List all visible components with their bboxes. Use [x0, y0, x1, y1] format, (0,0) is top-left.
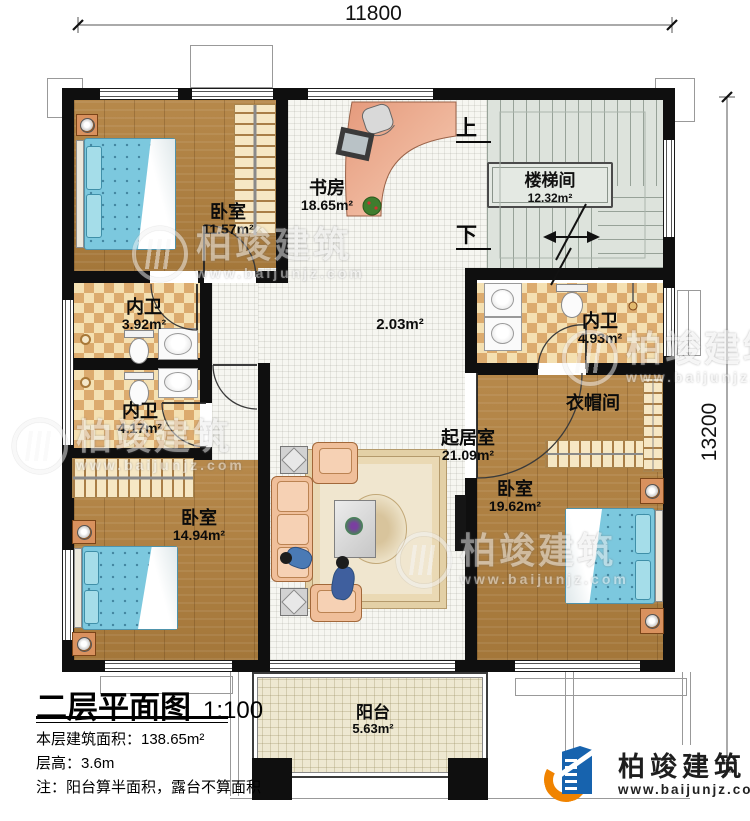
watermark-logo-icon — [396, 532, 452, 588]
room-area: 2.03m² — [376, 317, 424, 334]
room-label-study: 书房 18.65m² — [301, 178, 353, 214]
plant-icon — [363, 197, 381, 215]
note-floor-area: 本层建筑面积：138.65m² — [36, 728, 204, 749]
watermark-logo-icon — [132, 226, 188, 282]
room-label-cloakroom: 衣帽间 — [566, 393, 620, 413]
title-underline — [36, 722, 228, 723]
room-name: 衣帽间 — [566, 393, 620, 413]
brand-name: 柏竣建筑 — [618, 753, 750, 783]
room-name: 内卫 — [122, 297, 166, 317]
plan-title-row: 二层平面图 1:100 — [36, 682, 263, 727]
stair-direction-arrow — [587, 231, 600, 243]
door-swing-arc — [213, 365, 257, 409]
watermark-logo-icon — [12, 418, 68, 474]
watermark-logo-icon — [575, 343, 603, 373]
watermark-brand: 柏竣建筑 — [76, 419, 245, 455]
room-name: 卧室 — [173, 508, 225, 528]
watermark-brand: 柏竣建筑 — [626, 331, 750, 367]
room-label-hall: 2.03m² — [376, 317, 424, 334]
room-area: 21.09m² — [441, 448, 495, 464]
watermark-brand: 柏竣建筑 — [196, 227, 365, 263]
note-remark: 注：阳台算半面积，露台不算面积 — [36, 776, 261, 797]
room-name: 书房 — [301, 178, 353, 198]
floor-plan-sheet: 楼梯间 12.32m² 上 下 — [0, 0, 750, 821]
room-label-bedroom-br: 卧室 19.62m² — [489, 479, 541, 515]
plan-scale: 1:100 — [203, 697, 263, 725]
room-name: 卧室 — [202, 202, 253, 222]
plan-title: 二层平面图 — [36, 682, 191, 727]
room-label-bath-left-upper: 内卫 3.92m² — [122, 297, 166, 333]
watermark-brand: 柏竣建筑 — [460, 533, 629, 569]
stair-break-line — [551, 248, 571, 285]
brand-logo: 柏竣建筑 www.baijunjz.com — [542, 744, 750, 806]
plant-icon — [367, 201, 370, 204]
room-area: 19.62m² — [489, 499, 541, 515]
watermark: 柏竣建筑 www.baijunjz.com — [12, 418, 245, 474]
room-area: 18.65m² — [301, 198, 353, 214]
watermark-logo-icon — [145, 239, 173, 269]
watermark-logo-icon — [25, 431, 53, 461]
title-underline — [36, 716, 228, 719]
watermark: 柏竣建筑 www.baijunjz.com — [132, 226, 365, 282]
room-area: 14.94m² — [173, 528, 225, 544]
room-area: 5.63m² — [352, 722, 393, 737]
dimension-top: 11800 — [345, 2, 402, 26]
room-name: 内卫 — [578, 311, 622, 331]
stair-direction-arrow — [543, 231, 556, 243]
note-floor-height: 层高：3.6m — [36, 752, 114, 773]
watermark-url: www.baijunjz.com — [460, 571, 629, 587]
watermark-logo-icon — [562, 330, 618, 386]
dimension-right: 13200 — [698, 397, 722, 467]
watermark-url: www.baijunjz.com — [76, 457, 245, 473]
plant-icon — [374, 206, 377, 209]
watermark: 柏竣建筑 www.baijunjz.com — [562, 330, 750, 386]
room-name: 卧室 — [489, 479, 541, 499]
room-name: 阳台 — [352, 703, 393, 722]
watermark-logo-icon — [409, 545, 437, 575]
brand-logo-icon — [542, 744, 608, 806]
room-label-bedroom-bl: 卧室 14.94m² — [173, 508, 225, 544]
watermark-url: www.baijunjz.com — [196, 265, 365, 281]
room-area: 3.92m² — [122, 317, 166, 333]
watermark-url: www.baijunjz.com — [626, 369, 750, 385]
room-label-balcony: 阳台 5.63m² — [352, 703, 393, 737]
watermark: 柏竣建筑 www.baijunjz.com — [396, 532, 629, 588]
room-name: 起居室 — [441, 428, 495, 448]
shower-head-icon — [629, 302, 637, 310]
room-label-living: 起居室 21.09m² — [441, 428, 495, 464]
brand-url: www.baijunjz.com — [618, 782, 750, 797]
stair-break-line — [556, 204, 586, 260]
